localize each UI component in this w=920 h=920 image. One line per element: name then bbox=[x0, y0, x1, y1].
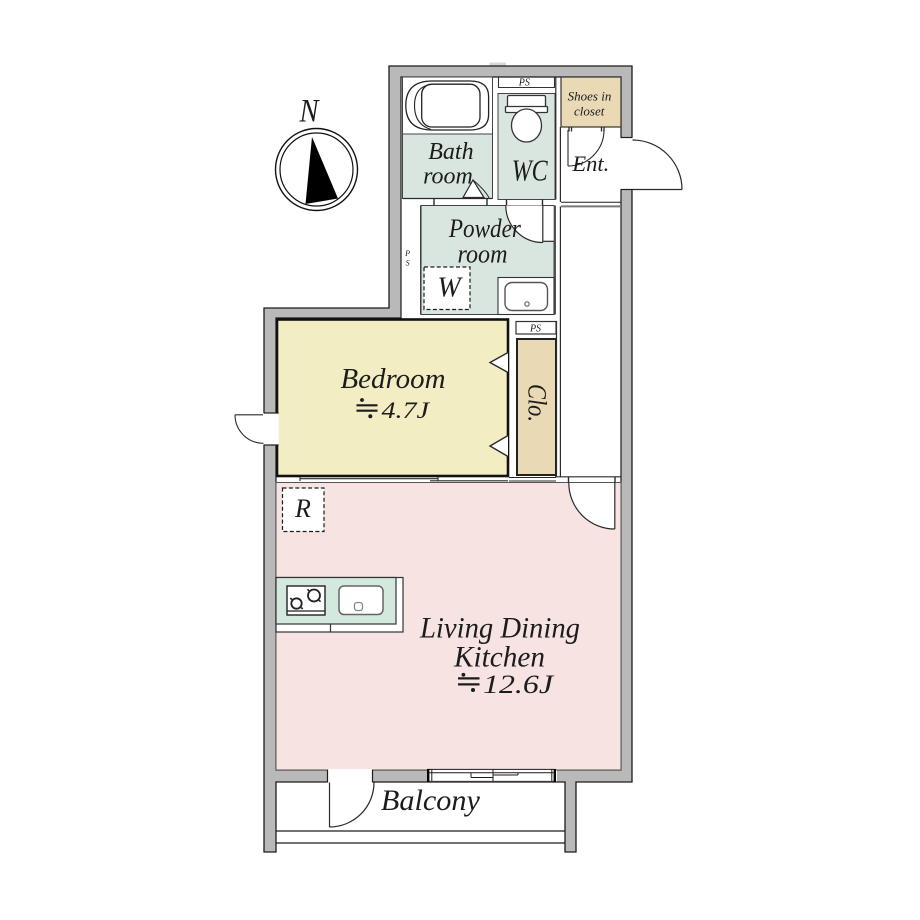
svg-text:R: R bbox=[294, 494, 311, 523]
svg-text:PS: PS bbox=[529, 324, 541, 335]
svg-text:PS: PS bbox=[518, 77, 530, 88]
svg-text:P: P bbox=[404, 249, 410, 258]
svg-text:Balcony: Balcony bbox=[381, 784, 481, 817]
svg-text:Shoes in: Shoes in bbox=[568, 89, 612, 104]
svg-text:S: S bbox=[406, 259, 410, 268]
svg-text:WC: WC bbox=[512, 153, 548, 188]
svg-text:Kitchen: Kitchen bbox=[453, 641, 545, 674]
svg-text:12.6J: 12.6J bbox=[483, 670, 555, 699]
svg-text:room: room bbox=[423, 164, 473, 190]
svg-text:closet: closet bbox=[574, 104, 605, 119]
svg-text:4.7J: 4.7J bbox=[382, 398, 431, 424]
svg-text:N: N bbox=[299, 94, 321, 130]
svg-text:room: room bbox=[458, 240, 508, 269]
svg-text:Bath: Bath bbox=[428, 139, 473, 165]
svg-text:Clo.: Clo. bbox=[522, 384, 551, 422]
svg-text:Ent.: Ent. bbox=[571, 151, 609, 176]
svg-text:W: W bbox=[437, 273, 463, 304]
svg-text:Bedroom: Bedroom bbox=[341, 364, 446, 395]
